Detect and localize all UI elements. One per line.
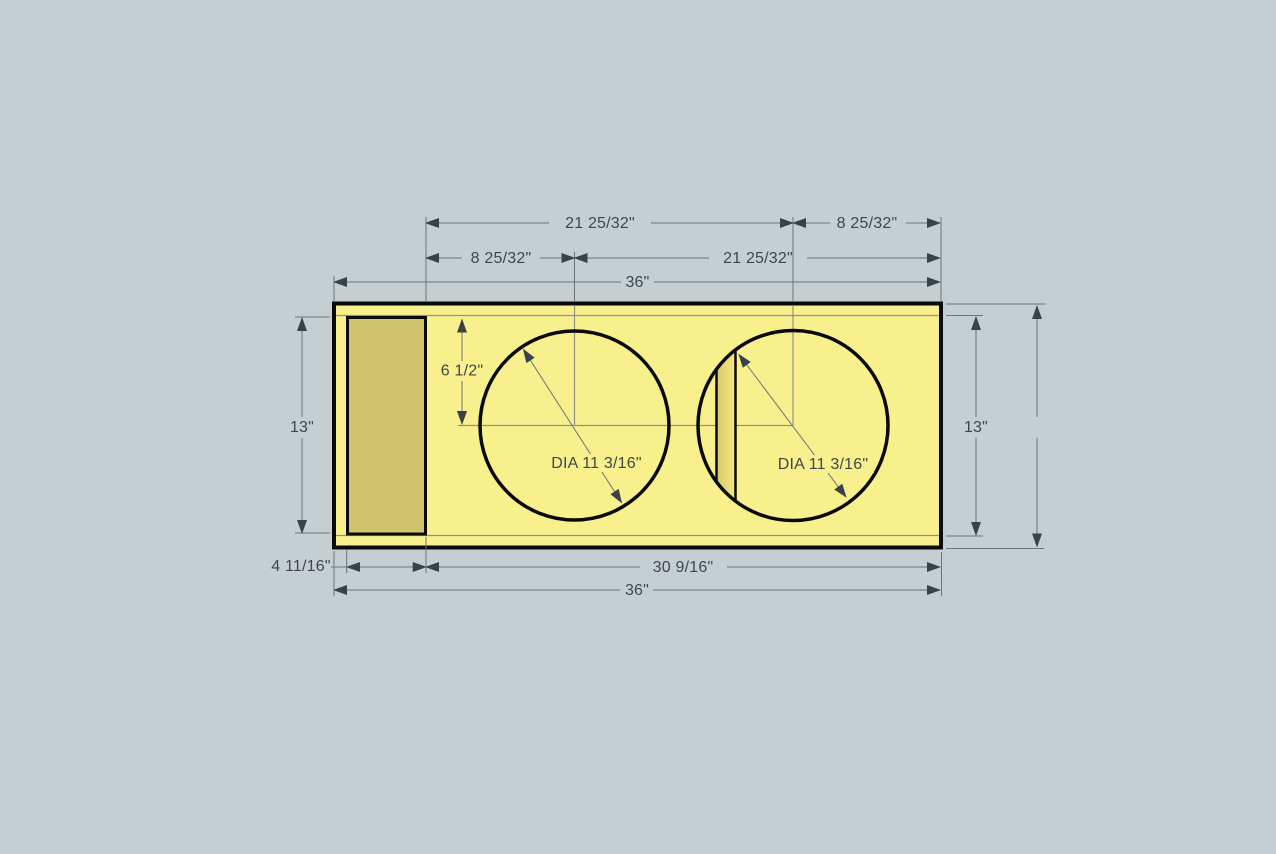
dim-label-left-height[interactable]: 13": [290, 419, 314, 436]
dim-label-top-overall[interactable]: 36": [625, 274, 649, 291]
dim-label-top2-left[interactable]: 8 25/32": [471, 250, 532, 267]
dim-label-bottom-overall[interactable]: 36": [625, 582, 649, 599]
dim-label-driver1-diameter[interactable]: DIA 11 3/16": [551, 455, 642, 472]
dim-label-top1-left[interactable]: 21 25/32": [565, 215, 635, 232]
dim-label-right-inner-height[interactable]: 13": [964, 419, 988, 436]
dim-label-driver2-diameter[interactable]: DIA 11 3/16": [778, 456, 869, 473]
dim-label-driver-offset[interactable]: 6 1/2": [441, 363, 483, 380]
dim-label-bottom-span[interactable]: 30 9/16": [653, 559, 714, 576]
dim-label-top2-right[interactable]: 21 25/32": [723, 250, 793, 267]
port-opening[interactable]: [348, 318, 426, 535]
dim-label-port-width[interactable]: 4 11/16": [271, 558, 330, 575]
drawing-canvas: 21 25/32" 8 25/32" 8 25/32" 21 25/32" 36…: [0, 0, 1276, 854]
enclosure-drawing-svg: 21 25/32" 8 25/32" 8 25/32" 21 25/32" 36…: [0, 0, 1276, 854]
dim-label-top1-right[interactable]: 8 25/32": [837, 215, 898, 232]
